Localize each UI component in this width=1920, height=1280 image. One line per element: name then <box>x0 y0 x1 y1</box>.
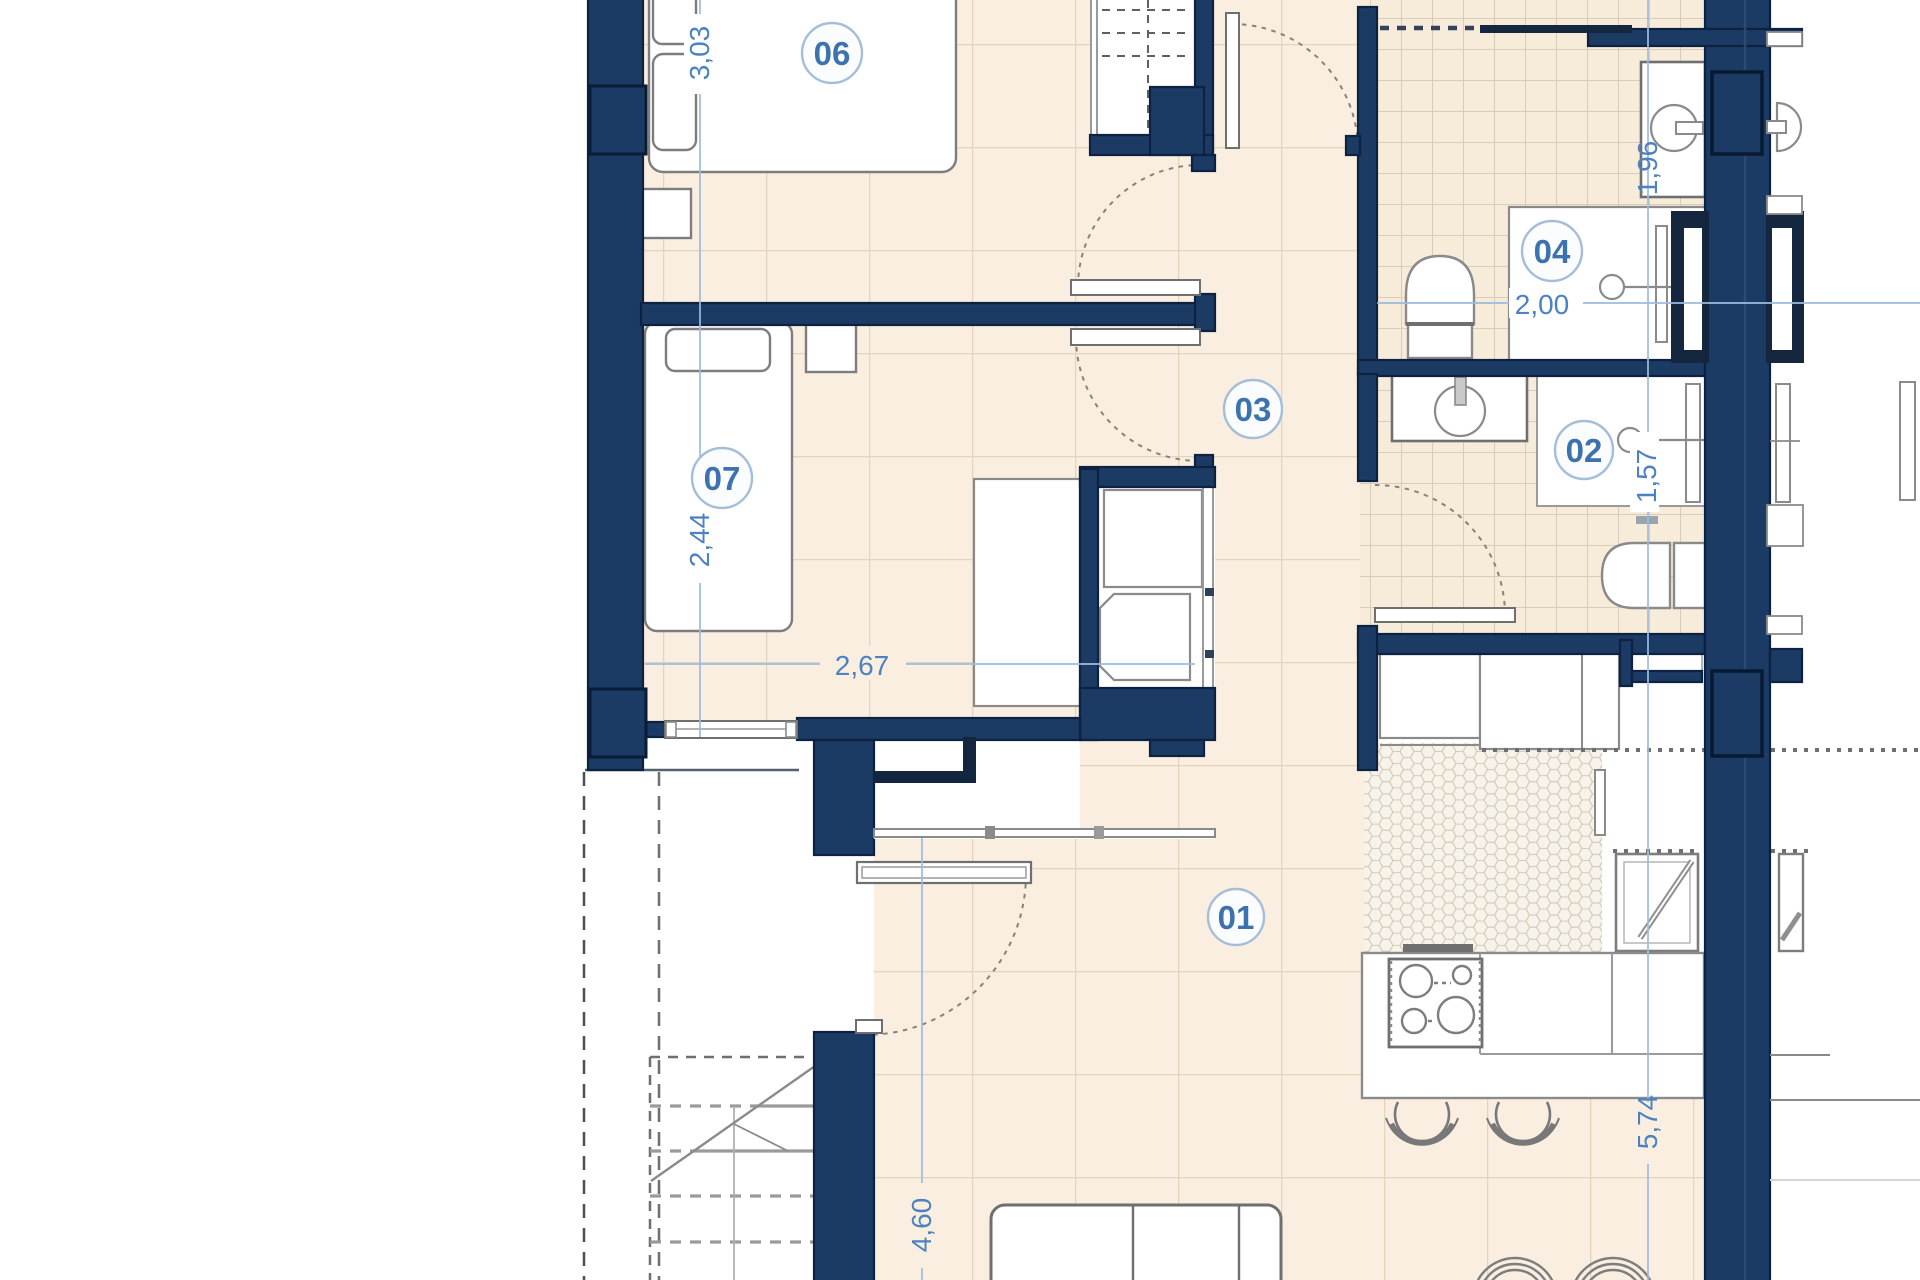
svg-text:06: 06 <box>814 35 851 72</box>
svg-text:1,57: 1,57 <box>1631 449 1662 504</box>
svg-text:01: 01 <box>1218 899 1255 936</box>
svg-text:4,60: 4,60 <box>906 1198 937 1253</box>
svg-text:3,03: 3,03 <box>684 26 715 81</box>
svg-text:07: 07 <box>704 460 741 497</box>
svg-text:02: 02 <box>1566 432 1603 469</box>
svg-text:2,00: 2,00 <box>1515 289 1570 320</box>
svg-text:04: 04 <box>1534 233 1571 270</box>
svg-text:2,44: 2,44 <box>684 513 715 568</box>
svg-text:2,67: 2,67 <box>835 650 890 681</box>
svg-text:5,74: 5,74 <box>1632 1095 1663 1150</box>
svg-text:1,96: 1,96 <box>1632 141 1663 196</box>
svg-text:03: 03 <box>1235 391 1272 428</box>
